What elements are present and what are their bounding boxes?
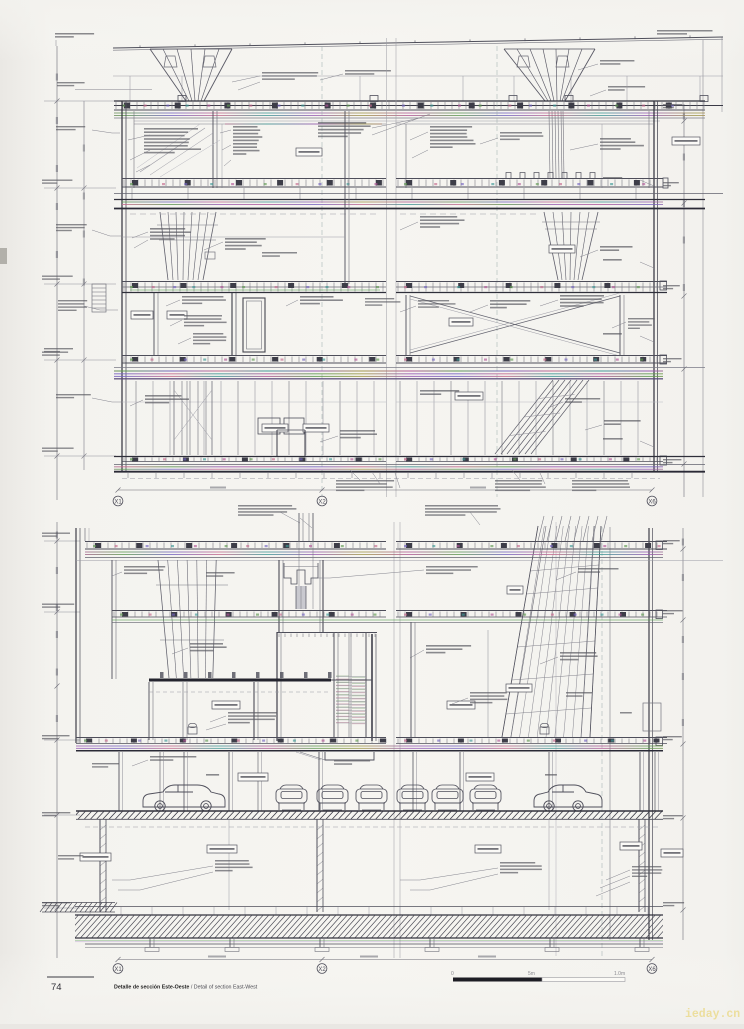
svg-text:X1: X1 bbox=[114, 499, 122, 505]
svg-text:ieday.cn: ieday.cn bbox=[685, 1008, 740, 1021]
svg-text:1.0m: 1.0m bbox=[614, 971, 625, 977]
svg-text:X6: X6 bbox=[648, 967, 656, 973]
svg-text:Detalle de sección Este-Oeste: Detalle de sección Este-Oeste / Detail o… bbox=[114, 985, 258, 991]
svg-text:X6: X6 bbox=[648, 499, 656, 505]
svg-text:0: 0 bbox=[451, 971, 454, 977]
svg-text:X1: X1 bbox=[114, 967, 122, 973]
svg-text:5m: 5m bbox=[528, 971, 535, 977]
svg-text:74: 74 bbox=[51, 982, 62, 993]
svg-text:X2: X2 bbox=[318, 967, 326, 973]
svg-text:X2: X2 bbox=[318, 499, 326, 505]
